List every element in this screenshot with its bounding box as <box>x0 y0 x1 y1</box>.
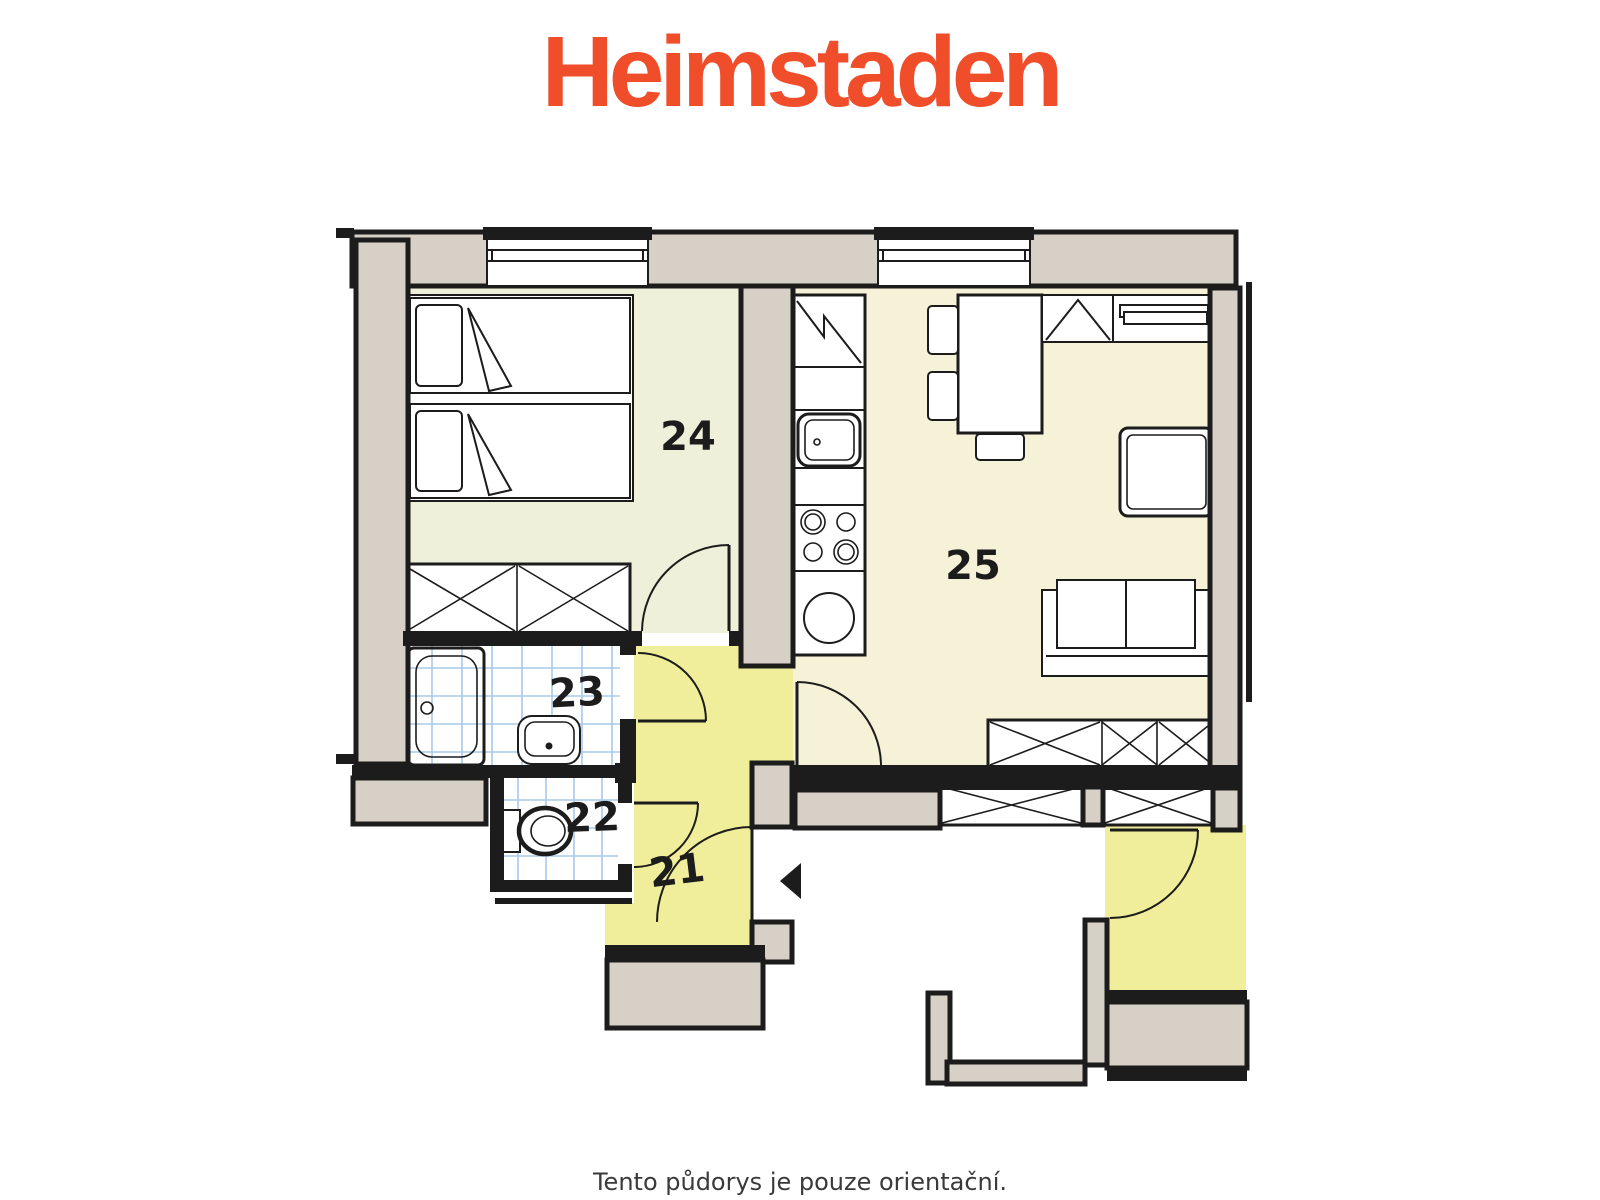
wc-bottom-wall <box>490 880 632 892</box>
room-label-bathroom: 23 <box>516 670 638 716</box>
bed-1-pillow <box>416 305 462 386</box>
chair-3 <box>976 434 1024 460</box>
bath-door-jamb <box>620 646 636 655</box>
washbasin-tap <box>546 743 553 750</box>
top-exterior-wall <box>352 232 1236 286</box>
coffee-table <box>1120 428 1213 516</box>
wc-bottom-wall-outer <box>495 898 632 904</box>
living-bottom-wall <box>793 765 1240 790</box>
wall-cut-mark-bottom <box>336 754 354 764</box>
bedroom-window-lintel <box>483 227 652 240</box>
disclaimer-caption: Tento půdorys je pouze orientační. <box>0 1168 1600 1196</box>
sideboard-shelf-2 <box>1124 312 1207 324</box>
chair-2 <box>928 372 958 420</box>
kitchen-counter <box>793 295 865 655</box>
wall-cut-mark-top <box>336 228 354 238</box>
bed-2-pillow <box>416 411 462 491</box>
room-label-bedroom: 24 <box>628 417 748 457</box>
hall-bottom-apron <box>607 960 763 1028</box>
stair-wall-right <box>1085 920 1107 1065</box>
living-window-lintel <box>874 227 1034 240</box>
bedroom-living-wall <box>741 286 793 666</box>
landing-closets <box>940 785 1213 825</box>
entry-arrow-icon <box>780 863 801 899</box>
closet-pier <box>1083 787 1103 825</box>
bedroom-hall-wall <box>403 631 642 646</box>
right-exterior-wall <box>1210 288 1240 786</box>
neighbor-hall-apron <box>1107 1002 1247 1068</box>
bath-hall-wall <box>620 719 636 769</box>
adjacent-building-line <box>1246 282 1252 702</box>
bedroom-door-jamb <box>729 631 743 646</box>
chair-1 <box>928 306 958 354</box>
kitchen-furniture <box>793 295 865 655</box>
bedroom-furniture <box>405 295 633 633</box>
landing-top-apron <box>795 790 940 828</box>
neighbor-hall-floor <box>1105 825 1246 990</box>
exterior-apron-left <box>353 778 486 824</box>
floor-plan-drawing <box>0 0 1600 1200</box>
neighbor-hall-wall-bottom <box>1107 1068 1247 1081</box>
dining-table <box>958 295 1042 433</box>
stair-wall-bottom <box>947 1062 1085 1084</box>
bath-wc-junction <box>615 763 636 783</box>
floorplan-page: Heimstaden <box>0 0 1600 1200</box>
room-label-living: 25 <box>913 546 1033 586</box>
wc-left-wall <box>490 777 504 892</box>
room-label-wc: 22 <box>531 796 652 840</box>
entry-wall-upper <box>752 763 792 827</box>
left-exterior-wall <box>356 240 408 764</box>
right-pier <box>1213 788 1240 830</box>
